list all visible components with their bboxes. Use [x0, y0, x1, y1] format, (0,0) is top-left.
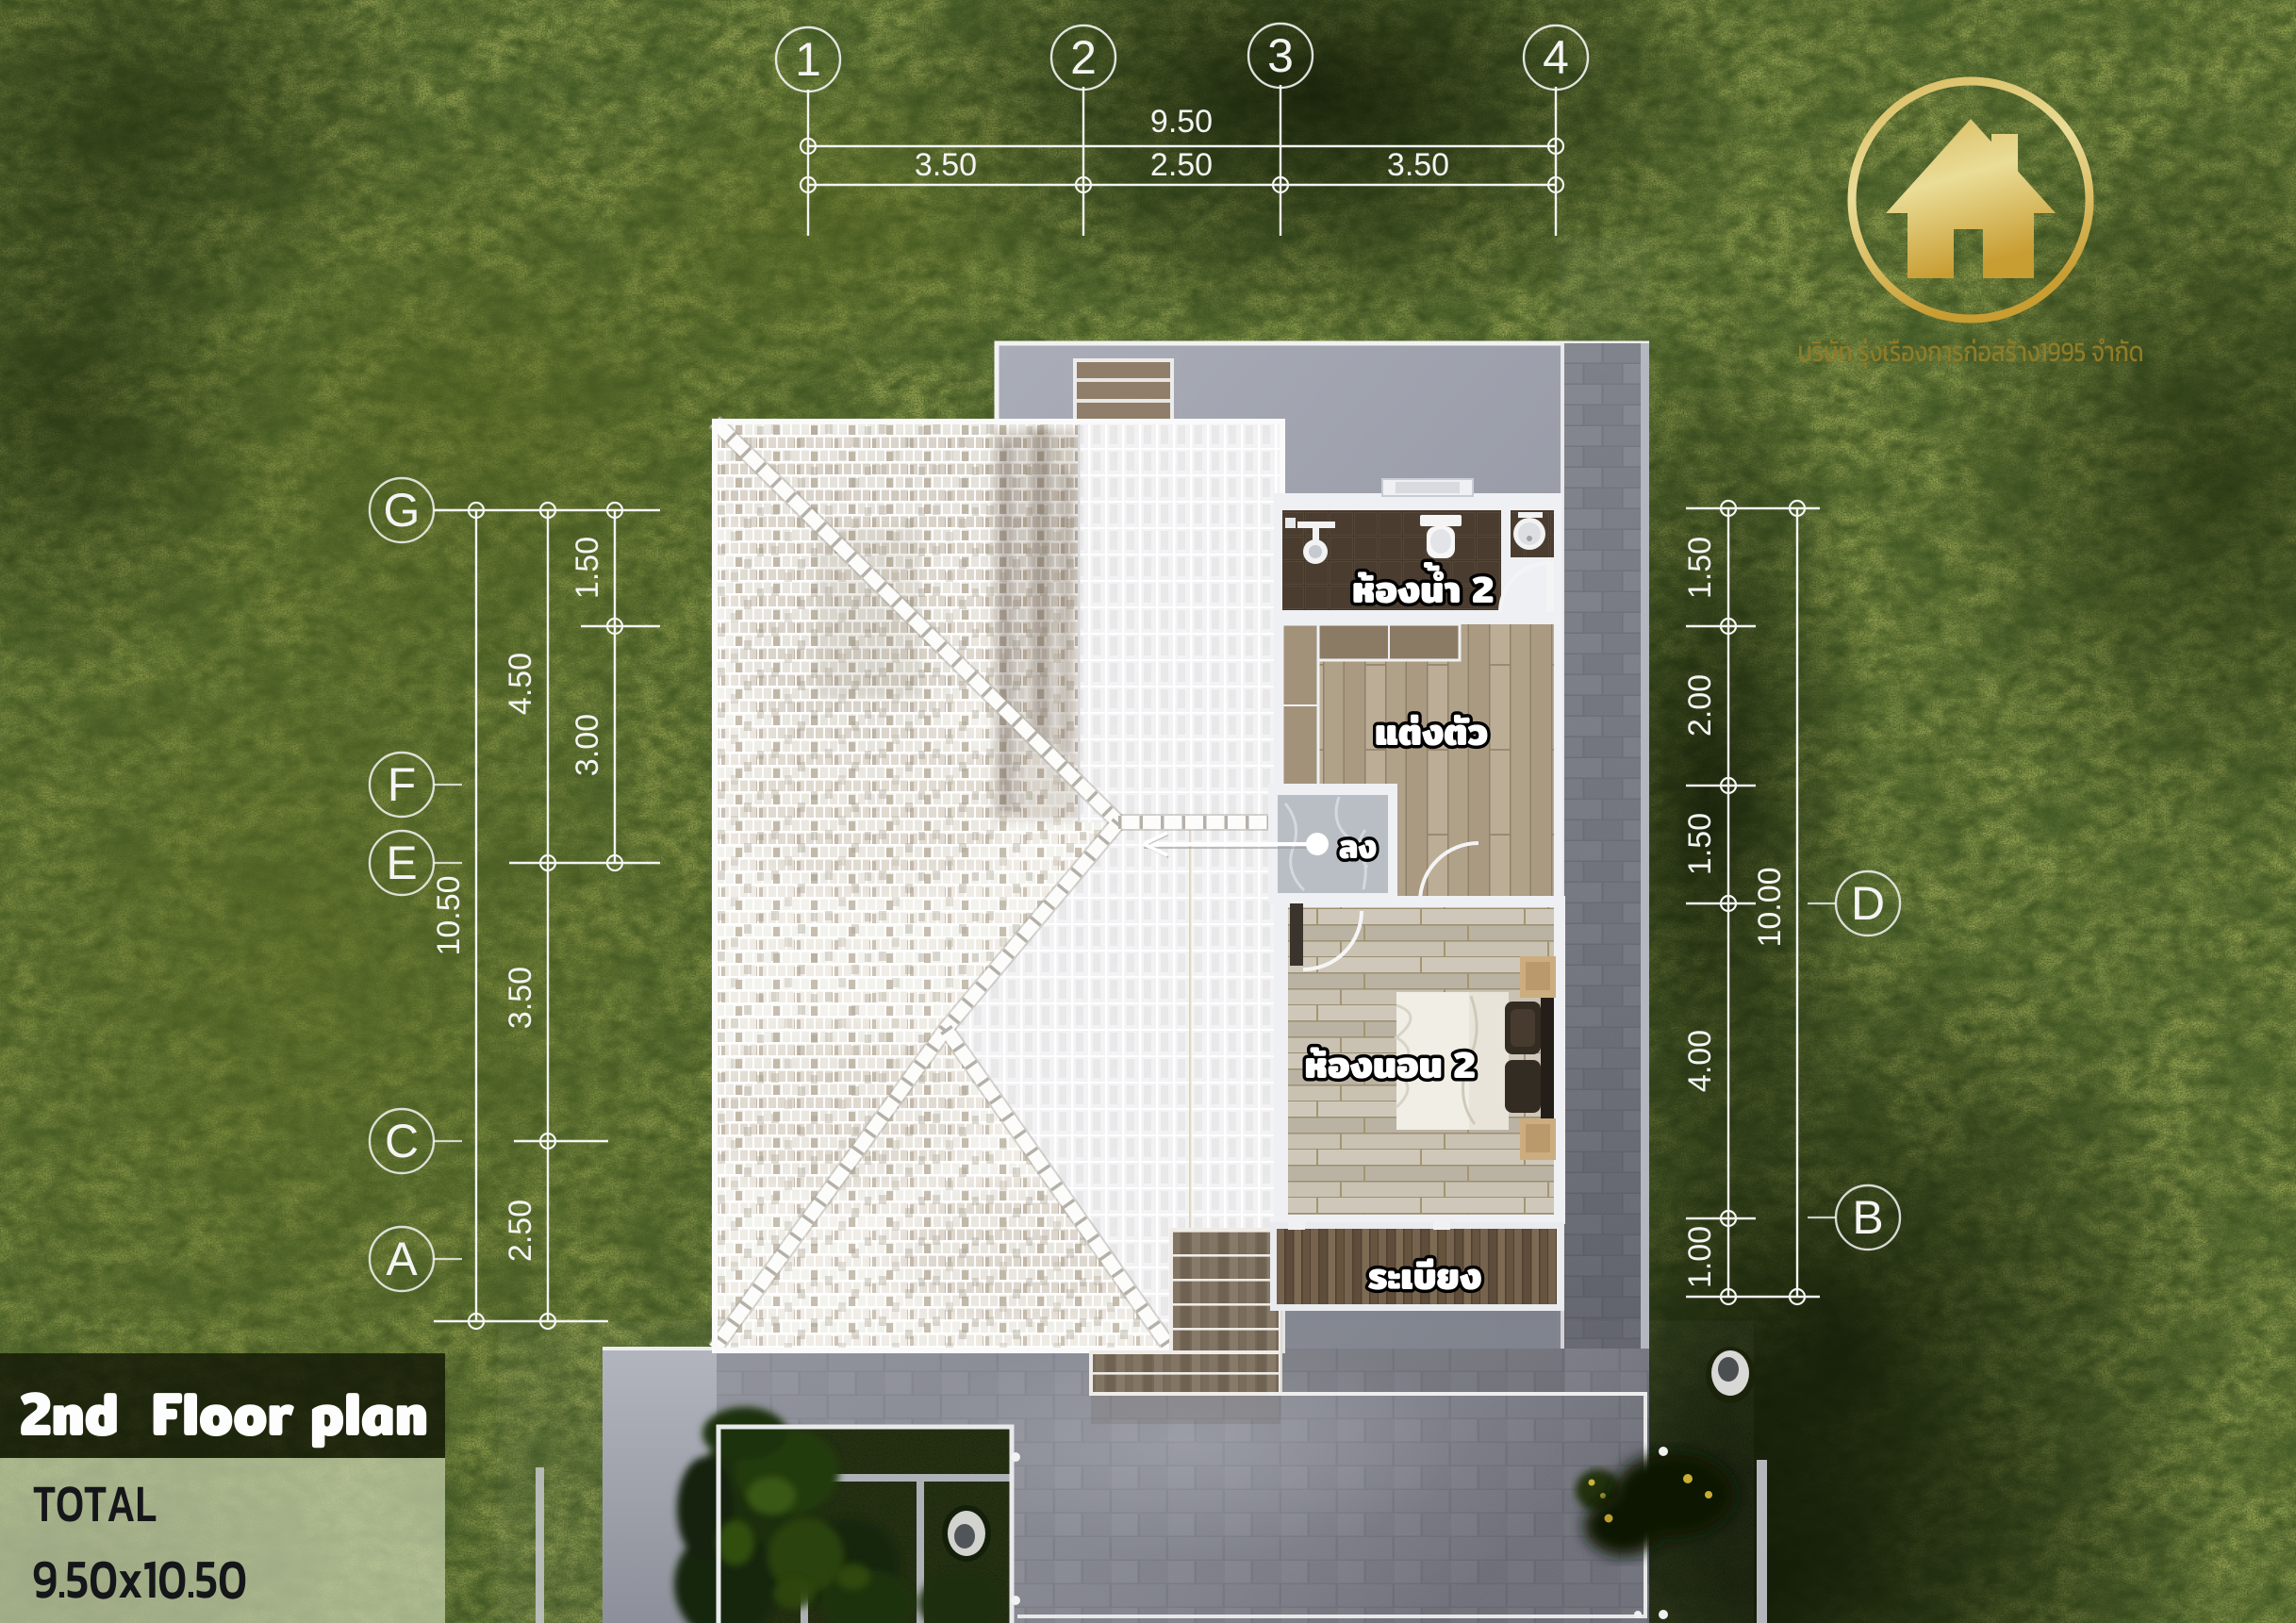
svg-text:C: C	[385, 1115, 419, 1168]
svg-text:1.00: 1.00	[1682, 1226, 1718, 1288]
svg-text:4: 4	[1543, 31, 1569, 84]
svg-text:A: A	[386, 1233, 418, 1285]
svg-text:2.50: 2.50	[503, 1200, 538, 1262]
svg-text:2.00: 2.00	[1682, 674, 1718, 737]
svg-text:4.50: 4.50	[503, 653, 538, 715]
svg-text:2.50: 2.50	[1150, 147, 1213, 183]
svg-text:1.50: 1.50	[1682, 813, 1718, 875]
svg-text:10.00: 10.00	[1752, 867, 1788, 947]
svg-text:B: B	[1852, 1191, 1883, 1244]
svg-text:F: F	[388, 758, 417, 811]
svg-text:2: 2	[1070, 31, 1097, 84]
svg-text:1: 1	[795, 33, 821, 86]
svg-text:3.00: 3.00	[570, 714, 605, 776]
svg-text:9.50: 9.50	[1150, 104, 1213, 140]
svg-text:3: 3	[1267, 29, 1294, 82]
svg-text:10.50: 10.50	[431, 875, 467, 955]
svg-text:3.50: 3.50	[915, 147, 977, 183]
svg-text:3.50: 3.50	[503, 967, 538, 1029]
svg-text:1.50: 1.50	[570, 537, 605, 599]
svg-text:D: D	[1851, 877, 1885, 930]
svg-text:G: G	[384, 484, 421, 537]
svg-text:1.50: 1.50	[1682, 537, 1718, 599]
svg-text:4.00: 4.00	[1682, 1030, 1718, 1092]
svg-text:3.50: 3.50	[1387, 147, 1449, 183]
svg-text:E: E	[386, 836, 417, 889]
